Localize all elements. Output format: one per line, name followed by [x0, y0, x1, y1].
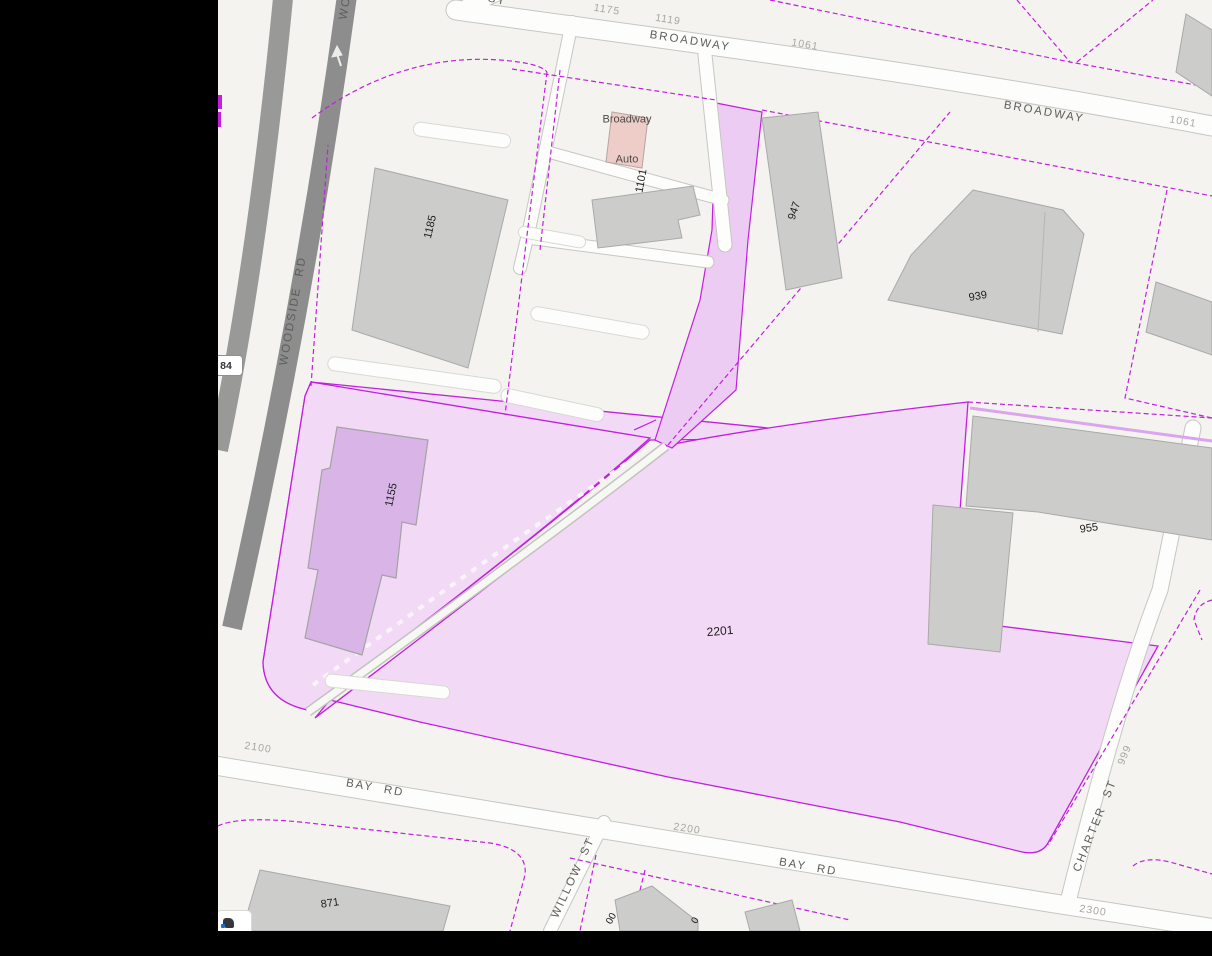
map-control-icon-dot: [221, 924, 225, 928]
route-84-shield-label: 84: [220, 360, 232, 372]
route-84-shield: 84: [218, 355, 243, 376]
map-canvas[interactable]: BROADWAY BROADWAY WOODSIDE RD WO BAY RD …: [218, 0, 1212, 931]
building-broadway-auto: [606, 112, 648, 168]
map-control-button[interactable]: [218, 910, 252, 931]
left-black-panel: [0, 0, 218, 956]
bottom-black-bar: [218, 931, 1212, 956]
screenshot-stage: BROADWAY BROADWAY WOODSIDE RD WO BAY RD …: [0, 0, 1212, 956]
map-graphics: [218, 0, 1212, 931]
building-955-wing: [928, 505, 1013, 652]
